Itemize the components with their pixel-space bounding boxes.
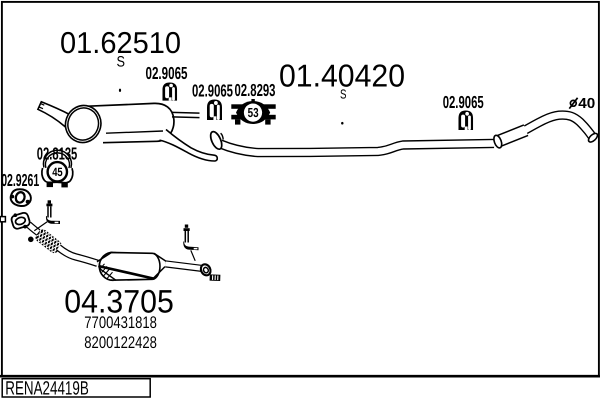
svg-text:RENA24419B: RENA24419B xyxy=(5,379,89,400)
svg-text:45: 45 xyxy=(52,165,63,179)
svg-text:02.9065: 02.9065 xyxy=(443,92,484,112)
svg-text:8200122428: 8200122428 xyxy=(84,333,157,352)
svg-text:S: S xyxy=(117,54,126,71)
svg-text:S: S xyxy=(340,87,347,102)
svg-text:53: 53 xyxy=(248,105,259,120)
svg-text:02.9065: 02.9065 xyxy=(146,63,188,83)
svg-text:7700431818: 7700431818 xyxy=(84,313,157,332)
svg-text:02.9065: 02.9065 xyxy=(192,80,233,100)
svg-text:02.9261: 02.9261 xyxy=(1,170,39,190)
svg-text:40: 40 xyxy=(578,96,595,112)
svg-text:02.8293: 02.8293 xyxy=(235,80,276,100)
